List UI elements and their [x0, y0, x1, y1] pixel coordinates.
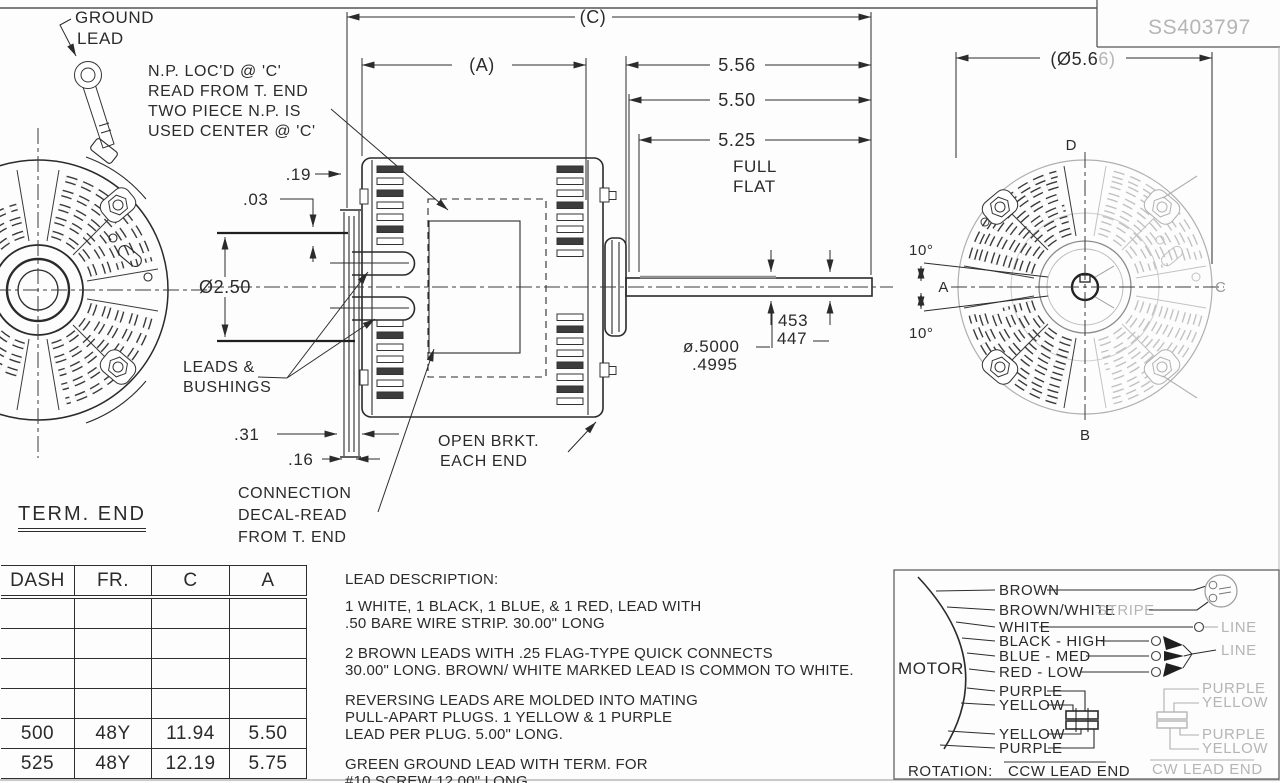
table-cell — [1, 597, 75, 629]
full-flat-label: FLAT — [733, 177, 776, 196]
nameplate-note: N.P. LOC'D @ 'C' READ FROM T. END TWO PI… — [148, 63, 448, 210]
connection-decal-label: DECAL-READ — [238, 507, 347, 524]
lead-description-line: REVERSING LEADS ARE MOLDED INTO MATING — [345, 692, 905, 709]
leads-bushings-label: BUSHINGS — [183, 379, 271, 396]
term-end-view — [0, 128, 207, 458]
np-note-line: TWO PIECE N.P. IS — [148, 103, 301, 120]
dim-525: 5.25 — [718, 130, 755, 150]
lead-description-line: 2 BROWN LEADS WITH .25 FLAG-TYPE QUICK C… — [345, 645, 905, 662]
dim-550: 5.50 — [718, 90, 755, 110]
table-cell — [230, 629, 307, 659]
wire-label-red-low: RED - LOW — [999, 664, 1084, 681]
lead-description-line: #10 SCREW 12.00" LONG. — [345, 773, 905, 783]
dim-dia250: Ø2.50 — [199, 277, 251, 297]
lead-description-line: 1 WHITE, 1 BLACK, 1 BLUE, & 1 RED, LEAD … — [345, 598, 905, 615]
lead-description-title: LEAD DESCRIPTION: — [345, 571, 905, 588]
line-terminal — [1195, 623, 1204, 632]
table-cell: 48Y — [75, 749, 152, 779]
table-cell: 5.75 — [230, 749, 307, 779]
cw-wire-label: YELLOW — [1202, 694, 1268, 711]
part-number: SS403797 — [1148, 16, 1251, 39]
table-cell: 11.94 — [152, 719, 230, 749]
dim-c: (C) — [580, 7, 607, 27]
lead-description-line: LEAD PER PLUG. 5.00" LONG. — [345, 726, 905, 743]
ground-lead-label: LEAD — [77, 29, 124, 48]
motor-label: MOTOR — [898, 659, 964, 678]
rotation-cw: CW LEAD END — [1152, 761, 1263, 778]
dim-03: .03 — [243, 190, 268, 209]
np-note-line: READ FROM T. END — [148, 83, 308, 100]
lead-description-paragraph: 1 WHITE, 1 BLACK, 1 BLUE, & 1 RED, LEAD … — [345, 598, 905, 632]
table-cell — [152, 629, 230, 659]
engineering-drawing: SS403797 GROUND — [0, 0, 1280, 783]
axis-label-a: A — [938, 279, 949, 296]
term-end-view-label: TERM. END — [18, 503, 146, 532]
axis-label-b: B — [1080, 427, 1091, 444]
lead-description-line: GREEN GROUND LEAD WITH TERM. FOR — [345, 756, 905, 773]
np-note-line: USED CENTER @ 'C' — [148, 123, 316, 140]
plug-connector — [1066, 711, 1098, 719]
dim-556: 5.56 — [718, 55, 755, 75]
table-cell — [230, 597, 307, 629]
table-cell — [75, 597, 152, 629]
table-cell: 5.50 — [230, 719, 307, 749]
table-cell: 12.19 — [152, 749, 230, 779]
lead-description-block: LEAD DESCRIPTION: 1 WHITE, 1 BLACK, 1 BL… — [345, 571, 905, 783]
lead-description-paragraph: 2 BROWN LEADS WITH .25 FLAG-TYPE QUICK C… — [345, 645, 905, 679]
leads-bushings-label: LEADS & — [183, 359, 255, 376]
capacitor-symbol — [1205, 575, 1237, 607]
table-header: A — [230, 566, 307, 598]
table-header: FR. — [75, 566, 152, 598]
dash-dimension-table: DASH FR. C A 50048Y11.945.50 52548Y12.19… — [1, 565, 307, 779]
table-header: C — [152, 566, 230, 598]
dim-angle-top: 10° — [909, 242, 933, 259]
nameplate-zone — [428, 199, 546, 377]
table-cell — [75, 689, 152, 719]
table-row — [1, 689, 307, 719]
dim-angle-bottom: 10° — [909, 325, 933, 342]
table-cell — [230, 659, 307, 689]
dim-a: (A) — [469, 55, 495, 75]
table-cell — [1, 629, 75, 659]
table-header-row: DASH FR. C A — [1, 566, 307, 598]
rotation-label: ROTATION: — [908, 763, 993, 780]
plug-connector-cw — [1157, 721, 1187, 728]
dim-shaft-dia: ø.5000 — [683, 337, 740, 356]
wiring-diagram: MOTOR BROWN BROWN/WHITE STRIPE WHITE BLA… — [894, 570, 1279, 780]
vent-slots — [377, 166, 583, 405]
table-cell — [152, 659, 230, 689]
dim-shaft-dia: .4995 — [692, 355, 738, 374]
table-cell: 525 — [1, 749, 75, 779]
np-note-line: N.P. LOC'D @ 'C' — [148, 63, 281, 80]
lead-description-paragraph: GREEN GROUND LEAD WITH TERM. FOR #10 SCR… — [345, 756, 905, 783]
table-header: DASH — [1, 566, 75, 598]
table-cell — [152, 689, 230, 719]
dim-16: .16 — [288, 450, 313, 469]
lead-description-line: 30.00" LONG. BROWN/ WHITE MARKED LEAD IS… — [345, 662, 905, 679]
lead-description-line: .50 BARE WIRE STRIP. 30.00" LONG — [345, 615, 905, 632]
table-cell — [1, 689, 75, 719]
wire-label-stripe: STRIPE — [1097, 602, 1155, 619]
table-row: 52548Y12.195.75 — [1, 749, 307, 779]
line-label: LINE — [1221, 642, 1257, 659]
plug-connector-cw — [1157, 712, 1187, 719]
axis-label-d: D — [1066, 137, 1077, 154]
dim-31: .31 — [234, 425, 259, 444]
connection-decal-label: FROM T. END — [238, 529, 347, 546]
axis-label-c: C — [1215, 279, 1226, 296]
table-cell — [1, 659, 75, 689]
table-cell: 48Y — [75, 719, 152, 749]
wire-label-blue-med: BLUE - MED — [999, 648, 1091, 665]
ground-lead-label: GROUND — [75, 8, 154, 27]
table-cell — [75, 629, 152, 659]
rotation-ccw: CCW LEAD END — [1008, 763, 1130, 780]
side-view — [208, 158, 893, 457]
table-row — [1, 659, 307, 689]
mount-bolt — [97, 184, 140, 226]
dim-19: .19 — [286, 165, 311, 184]
lead-description-line: PULL-APART PLUGS. 1 YELLOW & 1 PURPLE — [345, 709, 905, 726]
lead-end-view: D B A C (Ø5.66) 10° 10° — [909, 49, 1226, 444]
table-cell: 500 — [1, 719, 75, 749]
open-bracket-label: EACH END — [440, 453, 527, 470]
dim-dia566: (Ø5.66) — [1050, 49, 1115, 69]
open-bracket-label: OPEN BRKT. — [438, 433, 539, 450]
connector-arrow — [1163, 636, 1183, 650]
cw-wire-label: YELLOW — [1202, 740, 1268, 757]
ground-lead-terminal: GROUND LEAD — [60, 8, 154, 165]
connector-arrow — [1164, 651, 1184, 661]
lead-description-paragraph: REVERSING LEADS ARE MOLDED INTO MATING P… — [345, 692, 905, 743]
table-cell — [230, 689, 307, 719]
dim-flat-447: 447 — [777, 329, 807, 348]
full-flat-label: FULL — [733, 157, 777, 176]
line-label: LINE — [1221, 619, 1257, 636]
table-row — [1, 597, 307, 629]
table-cell — [152, 597, 230, 629]
table-cell — [75, 659, 152, 689]
dim-flat-453: 453 — [778, 311, 808, 330]
plug-connector — [1066, 721, 1098, 729]
table-row — [1, 629, 307, 659]
connection-decal-label: CONNECTION — [238, 485, 352, 502]
table-row: 50048Y11.945.50 — [1, 719, 307, 749]
connector-arrow — [1163, 663, 1183, 677]
